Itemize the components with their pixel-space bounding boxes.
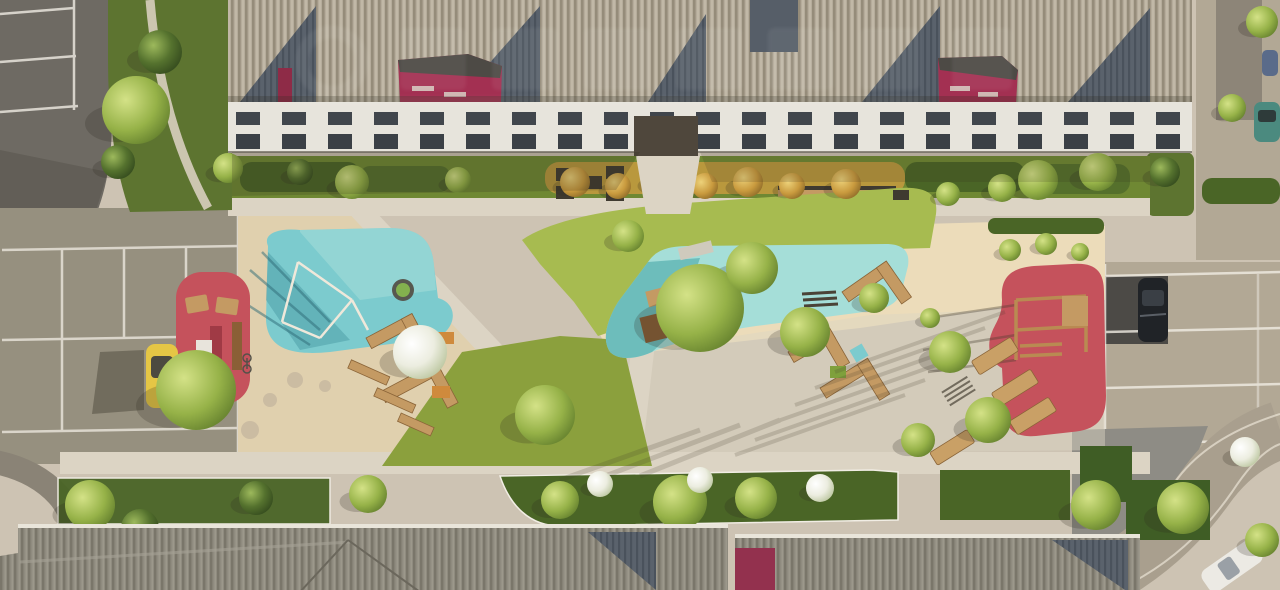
play-tower-top	[1062, 296, 1088, 326]
tree-light	[102, 76, 170, 144]
tree-blossom	[687, 467, 713, 493]
building-shadow	[232, 152, 640, 196]
tree-light	[726, 242, 778, 294]
tree-light	[929, 331, 971, 373]
tree-light	[541, 481, 579, 519]
facade-windows	[232, 102, 1188, 152]
tree-dark	[101, 145, 135, 179]
tree-light	[920, 308, 940, 328]
tree-light	[780, 307, 830, 357]
tree-blossom	[1230, 437, 1260, 467]
townhouse-red-accent	[735, 548, 775, 590]
tree-light	[65, 480, 115, 530]
tree-light	[1071, 243, 1089, 261]
tree-light	[612, 220, 644, 252]
tree-dark	[138, 30, 182, 74]
tree-light	[1157, 482, 1209, 534]
tree-light	[936, 182, 960, 206]
arch-passage	[634, 116, 698, 156]
arch-walkway	[636, 156, 700, 214]
tree-dark	[239, 481, 273, 515]
aerial-courtyard-render	[0, 0, 1280, 590]
tree-blossom	[587, 471, 613, 497]
trampoline	[396, 283, 410, 297]
tree-light	[1071, 480, 1121, 530]
tree-light	[1218, 94, 1246, 122]
tree-dark	[1150, 157, 1180, 187]
tree-light	[901, 423, 935, 457]
tree-light	[1245, 523, 1279, 557]
tree-light	[965, 397, 1011, 443]
tree-blossom	[806, 474, 834, 502]
car-black	[1138, 278, 1168, 342]
tree-light	[859, 283, 889, 313]
car-teal	[1254, 102, 1280, 142]
tree-light	[349, 475, 387, 513]
car-small-top-right	[1262, 50, 1278, 76]
tree-light	[156, 350, 236, 430]
tree-light	[1035, 233, 1057, 255]
tree-light	[735, 477, 777, 519]
tree-blossom	[393, 325, 447, 379]
hedge-right-sand	[988, 218, 1104, 234]
tree-light	[1246, 6, 1278, 38]
tree-light	[515, 385, 575, 445]
tree-light	[999, 239, 1021, 261]
